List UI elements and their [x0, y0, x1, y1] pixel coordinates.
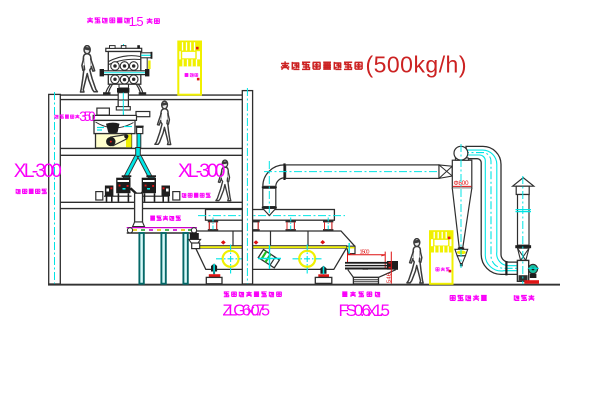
svg-text:FS0.6x1.5: FS0.6x1.5: [339, 301, 391, 320]
svg-text:1500: 1500: [360, 249, 370, 255]
svg-text:ZLG6x0.75: ZLG6x0.75: [223, 303, 271, 320]
svg-text:350: 350: [79, 109, 96, 124]
svg-text:546: 546: [386, 273, 392, 283]
svg-text:XL-300: XL-300: [14, 161, 62, 182]
svg-text:XL-300: XL-300: [178, 161, 226, 182]
svg-text:(500kg/h): (500kg/h): [366, 52, 467, 78]
svg-text:1.5: 1.5: [129, 14, 144, 29]
